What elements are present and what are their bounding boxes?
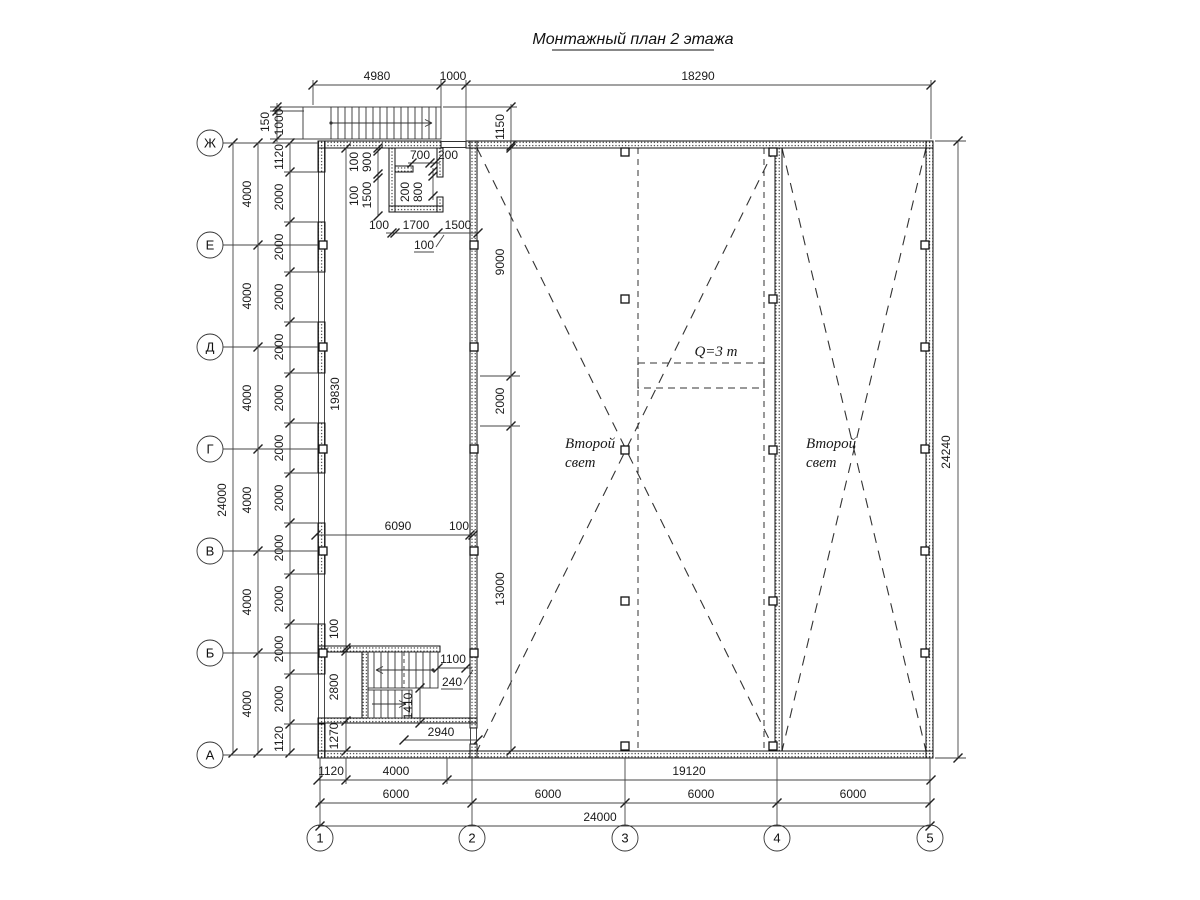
dim-room-100c: 100 [369,218,389,232]
dim-room-100b: 100 [347,186,361,206]
dim-1120: 1120 [272,144,286,170]
dim-room-1700: 1700 [403,218,430,232]
dim-100-v: 100 [327,619,341,639]
crane-capacity-label: Q=3 т [694,344,737,360]
dim-room-200b: 200 [398,182,412,202]
dim-1270: 1270 [327,722,341,749]
dim-6000: 6000 [535,787,562,801]
dim-2000: 2000 [272,233,286,260]
dim-bottom-24000: 24000 [583,810,617,824]
dim-room-800: 800 [411,182,425,202]
dim-room-100d: 100 [414,238,434,252]
axis-col-4: 4 [773,831,780,846]
dim-room-200a: 200 [438,148,458,162]
dim-2000: 2000 [272,534,286,561]
axis-row-e: Е [206,238,215,253]
dim-4000: 4000 [240,282,254,309]
dim-19830: 19830 [328,377,342,411]
dim-240: 240 [442,675,462,689]
axis-col-3: 3 [621,831,628,846]
axis-col-5: 5 [926,831,933,846]
dim-4000: 4000 [240,384,254,411]
dim-4980: 4980 [364,69,391,83]
monorail-beam [638,363,764,388]
dim-2000: 2000 [272,333,286,360]
second-light-right-1: Второй [806,436,857,452]
title-block: Монтажный план 2 этажа [532,31,733,50]
dim-2000-hall: 2000 [493,387,507,414]
dim-room-1500: 1500 [360,181,374,208]
dim-room-900: 900 [360,152,374,172]
dim-150: 150 [258,112,272,132]
dim-6000: 6000 [383,787,410,801]
axis-row-v: В [206,544,215,559]
dim-24240: 24240 [939,435,953,469]
dim-6090: 6090 [385,519,412,533]
dim-1410: 1410 [401,692,415,719]
axis-grid: Ж Е Д Г В Б А 1 2 3 4 5 [197,130,943,851]
second-light-left-1: Второй [565,436,616,452]
dim-2000: 2000 [272,635,286,662]
dim-1100: 1100 [440,652,466,666]
axis-col-2: 2 [468,831,475,846]
dim-room-1500b: 1500 [445,218,472,232]
dim-1150: 1150 [493,114,507,140]
second-light-right-2: свет [806,455,837,471]
axis-row-b: Б [206,646,215,661]
dim-2000: 2000 [272,585,286,612]
dim-19120: 19120 [672,764,706,778]
dim-4000: 4000 [240,180,254,207]
axis-row-zh: Ж [204,136,216,151]
dim-2000: 2000 [272,283,286,310]
dim-2800: 2800 [327,673,341,700]
dim-13000: 13000 [493,572,507,606]
dim-room-100a: 100 [347,152,361,172]
dim-bottom-4000: 4000 [383,764,410,778]
dim-6000: 6000 [688,787,715,801]
drawing-title: Монтажный план 2 этажа [532,31,733,48]
stair-upper-flight [368,652,438,688]
dim-2940: 2940 [428,725,455,739]
dim-2000: 2000 [272,183,286,210]
dim-1000: 1000 [440,69,467,83]
floor-plan-svg: Монтажный план 2 этажа [0,0,1200,900]
dim-2000: 2000 [272,384,286,411]
axis-col-1: 1 [316,831,323,846]
axis-row-a: А [206,748,215,763]
dim-6000: 6000 [840,787,867,801]
dim-left-24000: 24000 [215,483,229,517]
dim-4000: 4000 [240,690,254,717]
second-light-left-2: свет [565,455,596,471]
dim-100-wall: 100 [449,519,469,533]
dim-18290: 18290 [681,69,715,83]
dim-1120: 1120 [272,726,286,752]
dim-1000-stair: 1000 [272,108,286,135]
dim-room-700: 700 [410,148,430,162]
axis-row-g: Г [206,442,213,457]
exterior-stair-top [303,107,441,139]
dim-2000: 2000 [272,484,286,511]
dim-bottom-1120: 1120 [318,764,344,778]
axis-row-d: Д [206,340,215,355]
drawing-sheet: Монтажный план 2 этажа [0,0,1200,900]
dim-4000: 4000 [240,588,254,615]
dim-2000: 2000 [272,434,286,461]
dim-4000: 4000 [240,486,254,513]
dashed-markings [477,148,926,751]
dim-9000: 9000 [493,248,507,275]
dim-2000: 2000 [272,685,286,712]
